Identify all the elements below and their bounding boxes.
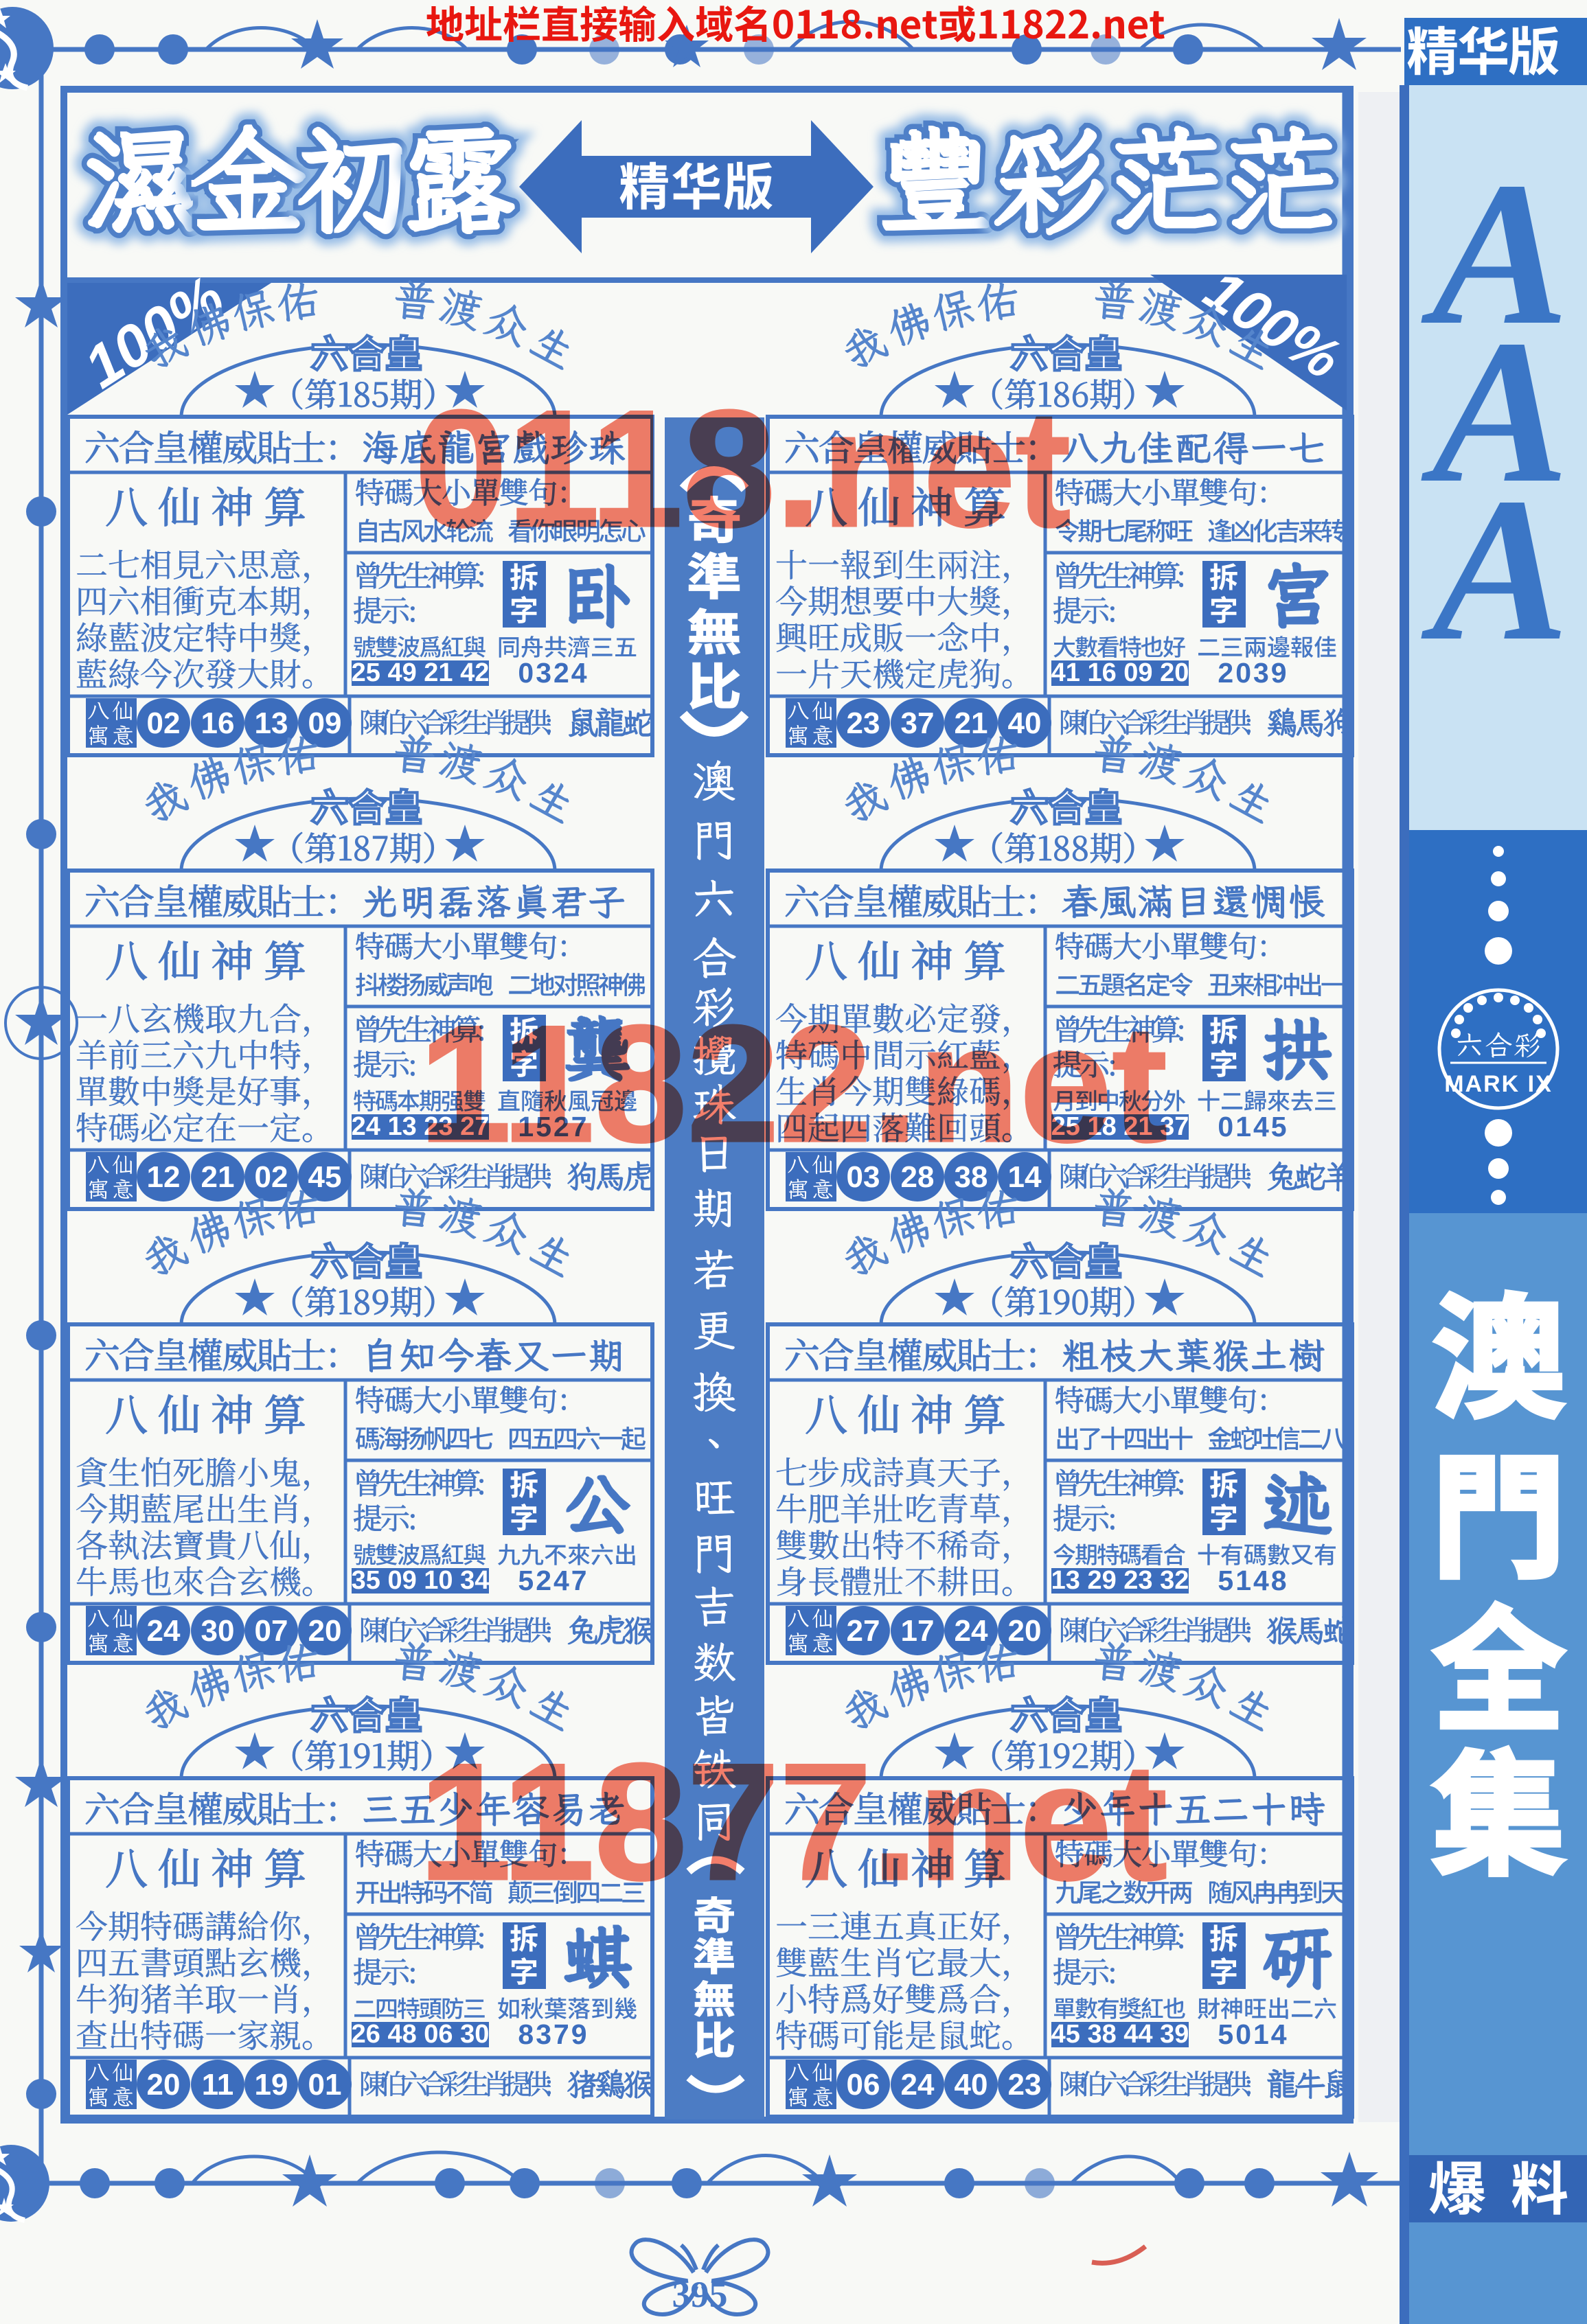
svg-text:13 29 23 32: 13 29 23 32 (1051, 1566, 1189, 1595)
svg-text:13: 13 (255, 706, 288, 740)
svg-text:37: 37 (901, 706, 935, 740)
svg-text:5247: 5247 (518, 1565, 589, 1596)
svg-text:8379: 8379 (518, 2018, 589, 2050)
svg-text:A: A (1419, 455, 1569, 683)
svg-text:11: 11 (202, 2068, 234, 2102)
svg-text:0324: 0324 (518, 657, 589, 689)
svg-text:MARK IX: MARK IX (1444, 1071, 1553, 1097)
svg-text:02: 02 (147, 706, 181, 740)
svg-text:40: 40 (955, 2068, 988, 2102)
svg-text:45 38 44 39: 45 38 44 39 (1051, 2020, 1189, 2049)
svg-text:41 16 09 20: 41 16 09 20 (1051, 658, 1189, 687)
svg-text:395: 395 (672, 2274, 728, 2315)
svg-text:16: 16 (201, 706, 235, 740)
svg-text:17: 17 (901, 1614, 935, 1648)
svg-text:25 49 21 42: 25 49 21 42 (352, 658, 490, 687)
svg-text:40: 40 (1008, 706, 1042, 740)
svg-text:5014: 5014 (1218, 2018, 1288, 2050)
svg-text:2039: 2039 (1218, 657, 1288, 689)
svg-text:24: 24 (901, 2068, 935, 2102)
svg-text:07: 07 (255, 1614, 288, 1648)
svg-text:01: 01 (308, 2068, 342, 2102)
svg-text:35 09 10 34: 35 09 10 34 (352, 1566, 490, 1595)
svg-text:24: 24 (955, 1614, 988, 1648)
svg-text:06: 06 (847, 2068, 880, 2102)
svg-text:21: 21 (955, 706, 988, 740)
svg-text:20: 20 (147, 2068, 181, 2102)
svg-text:24: 24 (147, 1614, 181, 1648)
svg-text:0145: 0145 (1218, 1111, 1288, 1142)
svg-text:26 48 06 30: 26 48 06 30 (352, 2020, 490, 2049)
svg-text:02: 02 (255, 1160, 288, 1194)
svg-text:12: 12 (147, 1160, 181, 1194)
svg-text:30: 30 (201, 1614, 235, 1648)
svg-text:45: 45 (308, 1160, 342, 1194)
svg-text:11822.net: 11822.net (419, 991, 1167, 1177)
svg-text:20: 20 (308, 1614, 342, 1648)
svg-text:09: 09 (308, 706, 342, 740)
svg-text:21: 21 (201, 1160, 235, 1194)
svg-text:11877.net: 11877.net (419, 1729, 1167, 1915)
svg-text:5148: 5148 (1218, 1565, 1288, 1596)
svg-text:23: 23 (1008, 2068, 1042, 2102)
svg-text:20: 20 (1008, 1614, 1042, 1648)
svg-text:19: 19 (255, 2068, 288, 2102)
svg-text:23: 23 (847, 706, 880, 740)
svg-text:27: 27 (847, 1614, 880, 1648)
svg-text:0118.net: 0118.net (415, 376, 1071, 562)
